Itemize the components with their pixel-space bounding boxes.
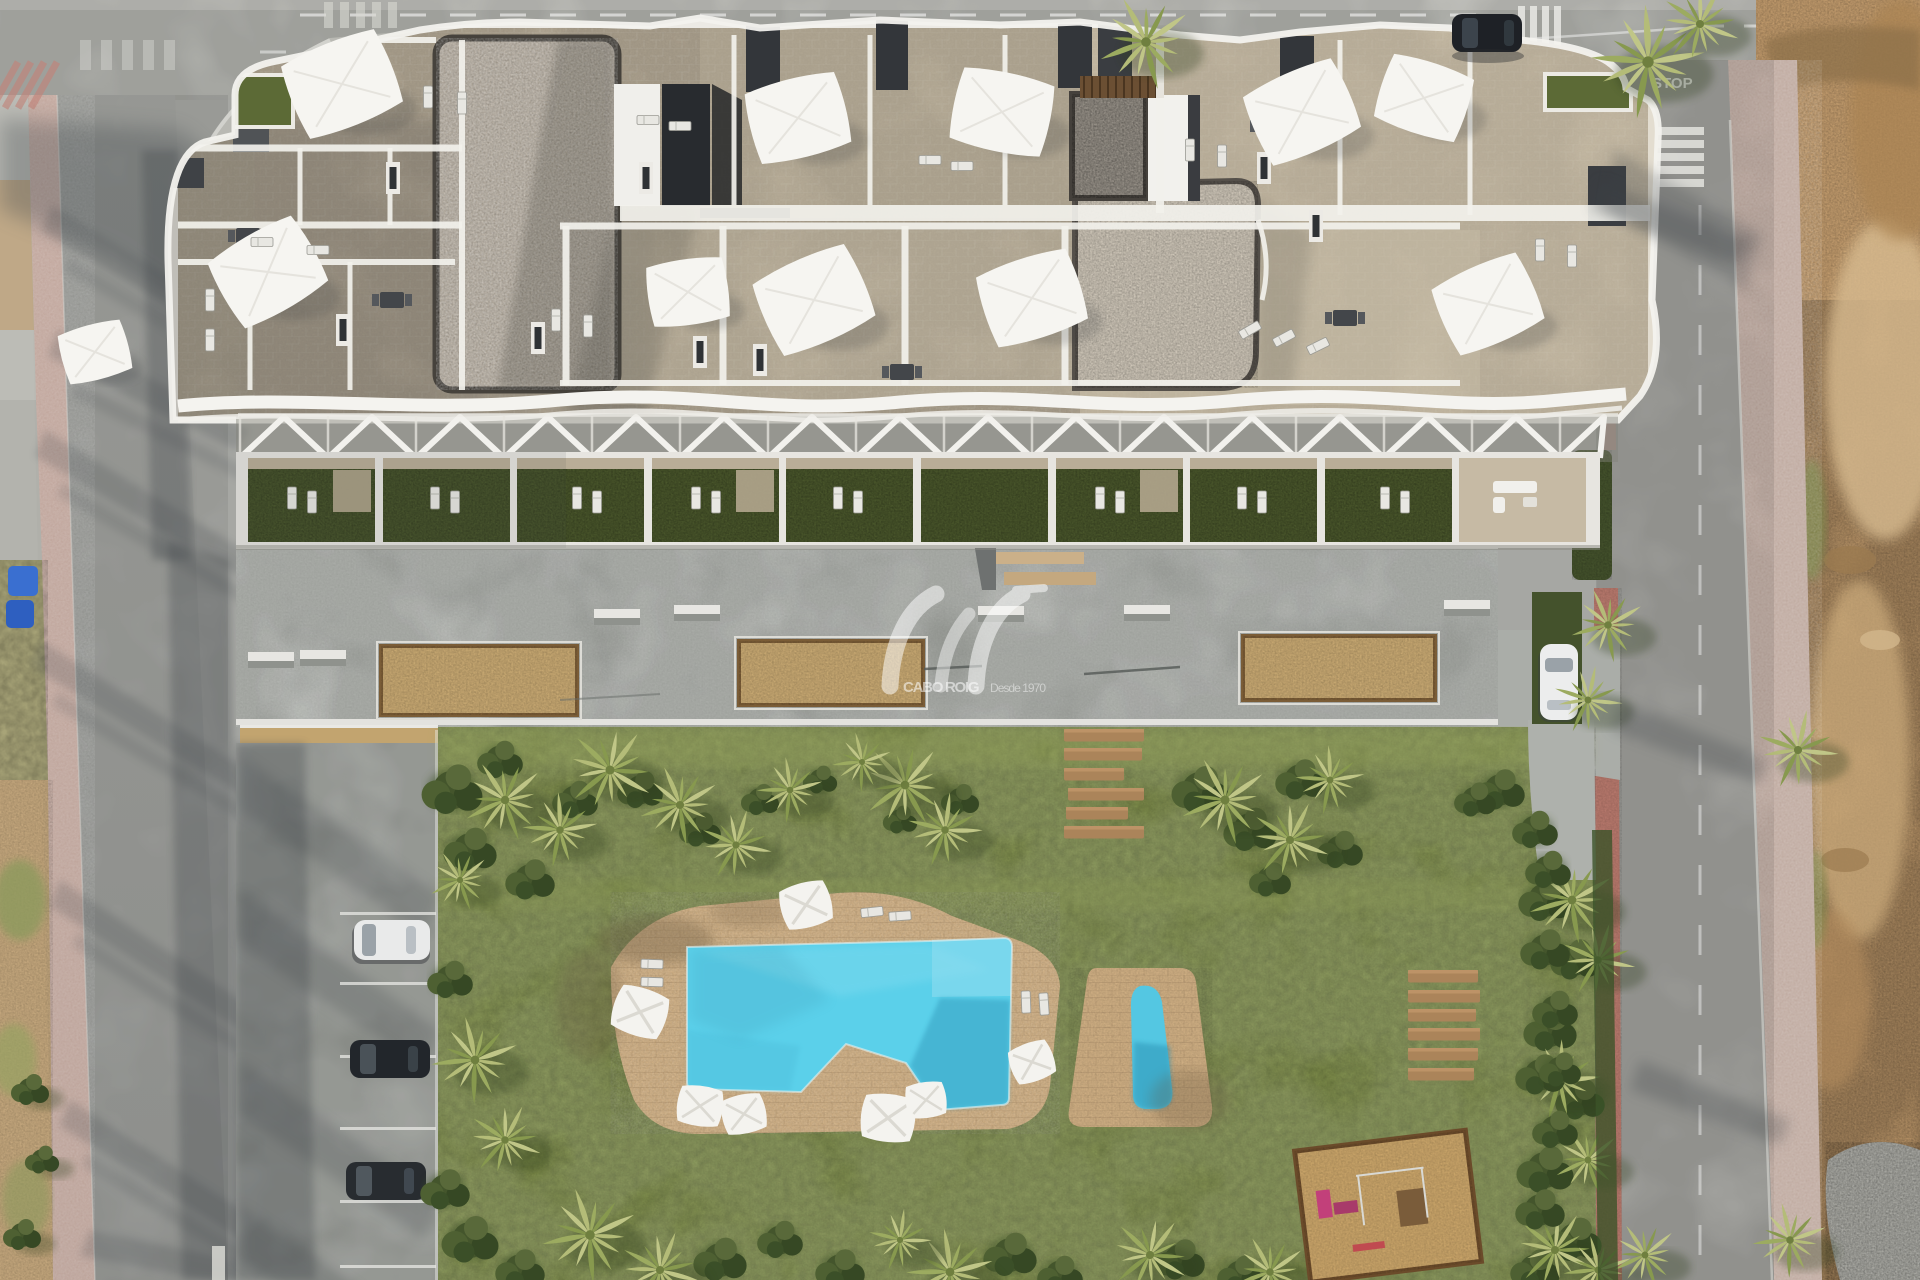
svg-text:Desde 1970: Desde 1970 (990, 681, 1046, 695)
svg-text:CABO ROIG: CABO ROIG (903, 679, 981, 696)
